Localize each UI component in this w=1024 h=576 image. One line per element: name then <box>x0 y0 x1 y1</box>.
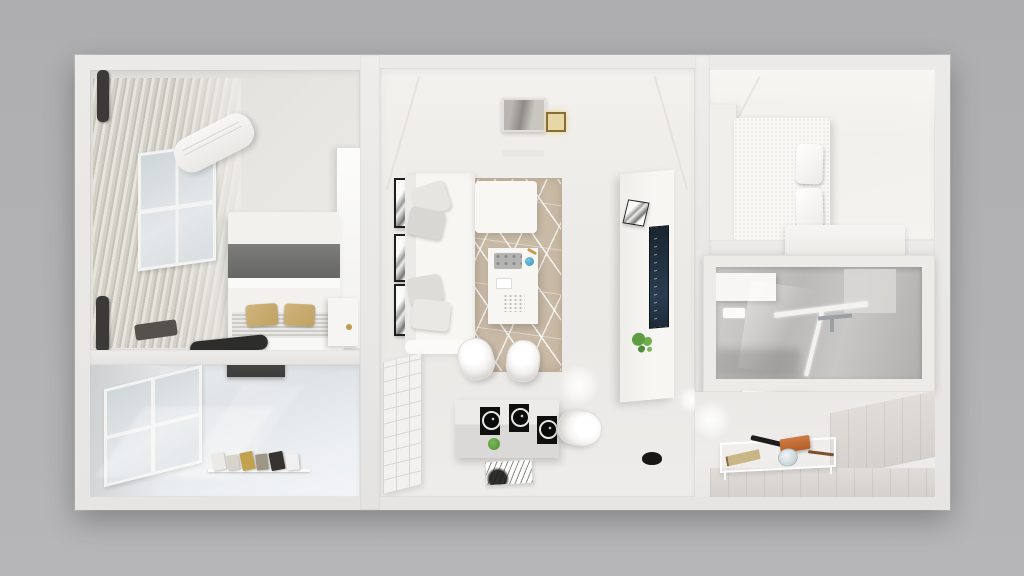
ceiling-light-orb <box>558 364 600 406</box>
ceiling-vent <box>502 150 544 157</box>
floorplan-stage <box>0 0 1024 576</box>
gold-ornament <box>346 324 352 330</box>
brown-pen <box>808 450 834 456</box>
black-floor-bowl <box>642 452 662 465</box>
table-leg <box>724 471 726 480</box>
brass-ceiling-lamp <box>546 112 566 132</box>
leaning-art-frame <box>622 199 649 226</box>
place-setting <box>480 407 500 435</box>
glass-vase <box>778 448 798 467</box>
table-decor <box>503 294 525 312</box>
frame-art <box>624 200 649 225</box>
throw-pillow <box>411 298 452 332</box>
mini-plant <box>488 438 500 450</box>
tan-notebook <box>725 449 760 466</box>
white-pillow <box>795 144 823 185</box>
tv-wall-unit <box>620 170 674 403</box>
serving-tray <box>494 253 522 269</box>
dining-chair <box>504 338 542 383</box>
storage-box <box>268 451 285 471</box>
storage-box <box>285 453 300 470</box>
room-bedroom-right <box>710 70 935 240</box>
green-plant <box>632 332 645 346</box>
gray-blanket <box>228 244 340 278</box>
dining-chair <box>556 407 604 448</box>
sofa-chaise <box>475 181 537 233</box>
floor-shadow <box>716 349 800 379</box>
plate <box>511 408 530 427</box>
white-pillow <box>795 188 823 229</box>
sketch-doormat <box>484 459 533 486</box>
nightstand <box>328 298 358 346</box>
table-leg <box>830 465 832 474</box>
tv-screen-glyphs <box>654 235 657 319</box>
faucet-handle <box>830 319 834 332</box>
room-bathroom <box>703 255 935 392</box>
plate <box>539 420 558 439</box>
console-table <box>720 437 836 473</box>
dining-table <box>455 400 559 458</box>
bathroom-interior <box>716 267 922 379</box>
picture-art <box>504 100 544 130</box>
storage-box <box>255 453 269 470</box>
storage-box <box>226 454 240 471</box>
teal-ornament <box>525 257 534 266</box>
wainscot-panels <box>830 391 935 479</box>
room-living <box>380 68 695 497</box>
place-setting <box>509 404 529 432</box>
curtain-rod-cap-top <box>97 70 109 122</box>
room-bedroom-left <box>90 70 360 350</box>
duvet-fold <box>228 278 340 288</box>
coffee-table <box>488 248 538 324</box>
room-entry-hall <box>695 392 935 497</box>
gold-pillow <box>245 303 278 327</box>
wainscot-panels <box>710 468 935 497</box>
apartment-shell <box>75 55 950 510</box>
curtain-rod-cap-bottom <box>96 296 109 350</box>
plate <box>482 411 501 430</box>
wardrobe-panel <box>710 105 737 240</box>
gold-pen <box>527 248 537 256</box>
double-bed <box>734 118 830 240</box>
wall-left-center <box>360 55 380 510</box>
paper-roll-holder <box>722 307 746 319</box>
notepad <box>496 278 512 289</box>
gold-pillow <box>283 303 315 327</box>
storage-box <box>211 452 227 471</box>
double-bed <box>228 212 340 350</box>
place-setting <box>537 416 557 444</box>
tv-screen <box>650 226 668 328</box>
cube-shelving-unit <box>383 353 421 494</box>
ceiling-picture <box>502 98 546 132</box>
floor-light-glow <box>691 400 731 440</box>
wall-left-horizontal <box>90 350 360 365</box>
dresser-sideboard <box>785 225 905 257</box>
room-utility <box>90 365 360 497</box>
